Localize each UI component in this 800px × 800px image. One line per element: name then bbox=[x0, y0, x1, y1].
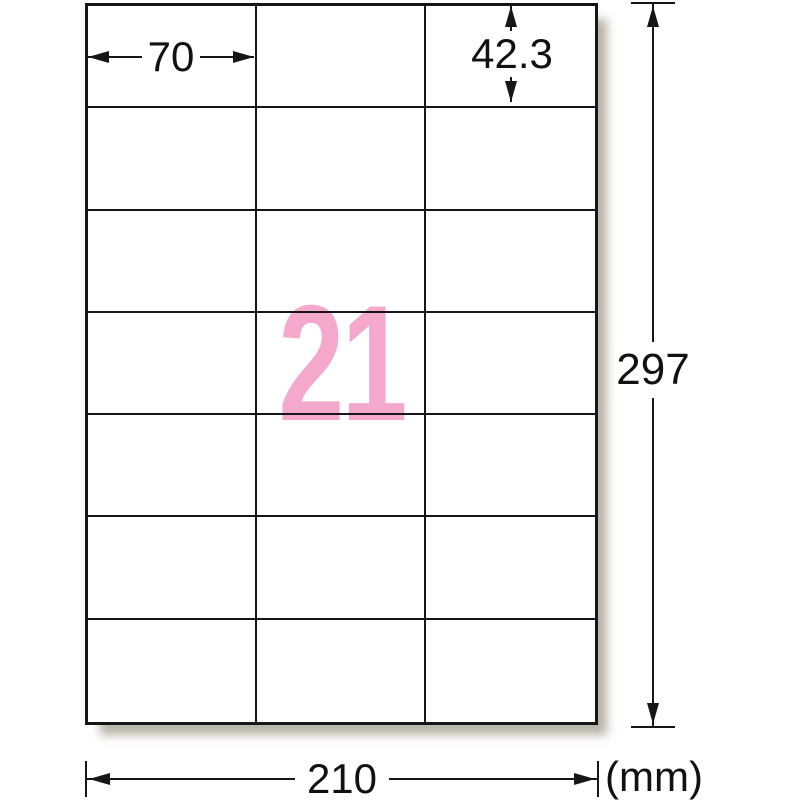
label-cell bbox=[257, 108, 426, 210]
arrow-up-icon bbox=[647, 6, 659, 27]
label-cell bbox=[257, 620, 426, 722]
sheet: 21 bbox=[85, 3, 598, 725]
sheet-height-value: 297 bbox=[615, 342, 690, 398]
label-cell bbox=[88, 313, 257, 415]
arrow-down-icon bbox=[647, 703, 659, 724]
label-cell bbox=[426, 108, 595, 210]
label-cell bbox=[426, 620, 595, 722]
label-cell bbox=[88, 620, 257, 722]
dim-sheet-width: 210 bbox=[85, 760, 599, 798]
label-cell bbox=[426, 517, 595, 619]
label-sheet-diagram: 21 70 42.3 297 210 (mm) bbox=[0, 0, 800, 800]
label-cell bbox=[88, 415, 257, 517]
label-cell bbox=[426, 415, 595, 517]
dim-cap-bottom bbox=[631, 726, 675, 728]
label-width-value: 70 bbox=[142, 36, 201, 78]
label-cell bbox=[426, 211, 595, 313]
label-cell bbox=[257, 211, 426, 313]
label-grid bbox=[88, 6, 595, 722]
sheet-width-value: 210 bbox=[295, 758, 389, 800]
label-cell bbox=[257, 313, 426, 415]
label-cell bbox=[257, 6, 426, 108]
label-cell bbox=[88, 108, 257, 210]
label-cell bbox=[88, 211, 257, 313]
label-cell bbox=[426, 313, 595, 415]
label-height-value: 42.3 bbox=[466, 31, 558, 77]
arrow-right-icon bbox=[574, 773, 595, 785]
label-cell bbox=[88, 517, 257, 619]
dim-cap-right bbox=[597, 761, 599, 797]
label-cell bbox=[257, 415, 426, 517]
arrow-left-icon bbox=[89, 773, 110, 785]
dim-sheet-height: 297 bbox=[631, 2, 675, 728]
label-cell bbox=[257, 517, 426, 619]
unit-label: (mm) bbox=[605, 753, 703, 800]
